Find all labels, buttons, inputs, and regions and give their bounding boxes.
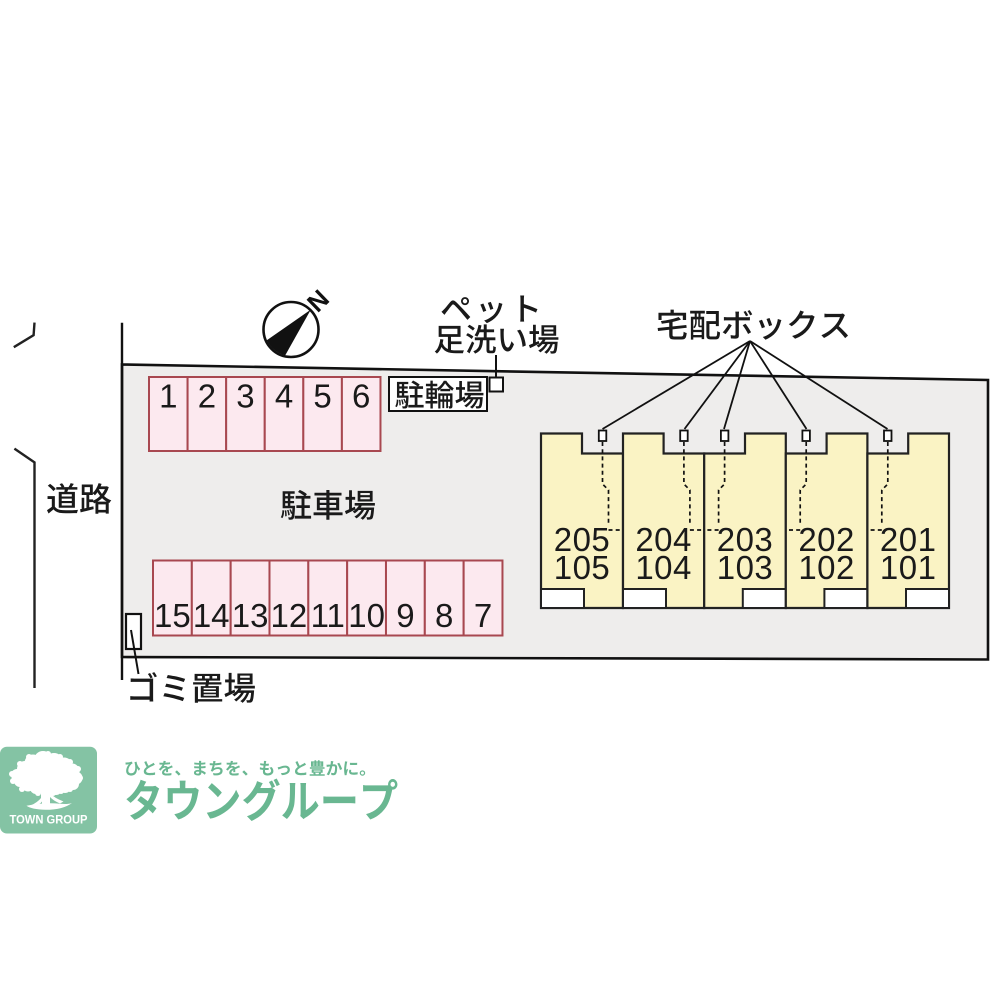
svg-text:101: 101: [880, 549, 937, 586]
svg-text:7: 7: [474, 597, 492, 634]
svg-text:102: 102: [798, 549, 855, 586]
svg-text:103: 103: [717, 549, 774, 586]
svg-text:14: 14: [193, 597, 230, 634]
svg-text:TOWN GROUP: TOWN GROUP: [10, 815, 88, 827]
svg-text:10: 10: [348, 597, 385, 634]
svg-text:1: 1: [159, 378, 177, 415]
svg-text:2: 2: [198, 378, 216, 415]
svg-text:105: 105: [554, 549, 611, 586]
svg-text:104: 104: [635, 549, 692, 586]
svg-text:15: 15: [154, 597, 191, 634]
svg-text:6: 6: [352, 378, 370, 415]
svg-text:9: 9: [396, 597, 414, 634]
svg-text:12: 12: [271, 597, 308, 634]
svg-text:3: 3: [236, 378, 254, 415]
svg-text:11: 11: [311, 597, 345, 634]
svg-text:5: 5: [313, 378, 331, 415]
svg-text:4: 4: [275, 378, 293, 415]
svg-text:8: 8: [435, 597, 453, 634]
svg-text:13: 13: [232, 597, 269, 634]
